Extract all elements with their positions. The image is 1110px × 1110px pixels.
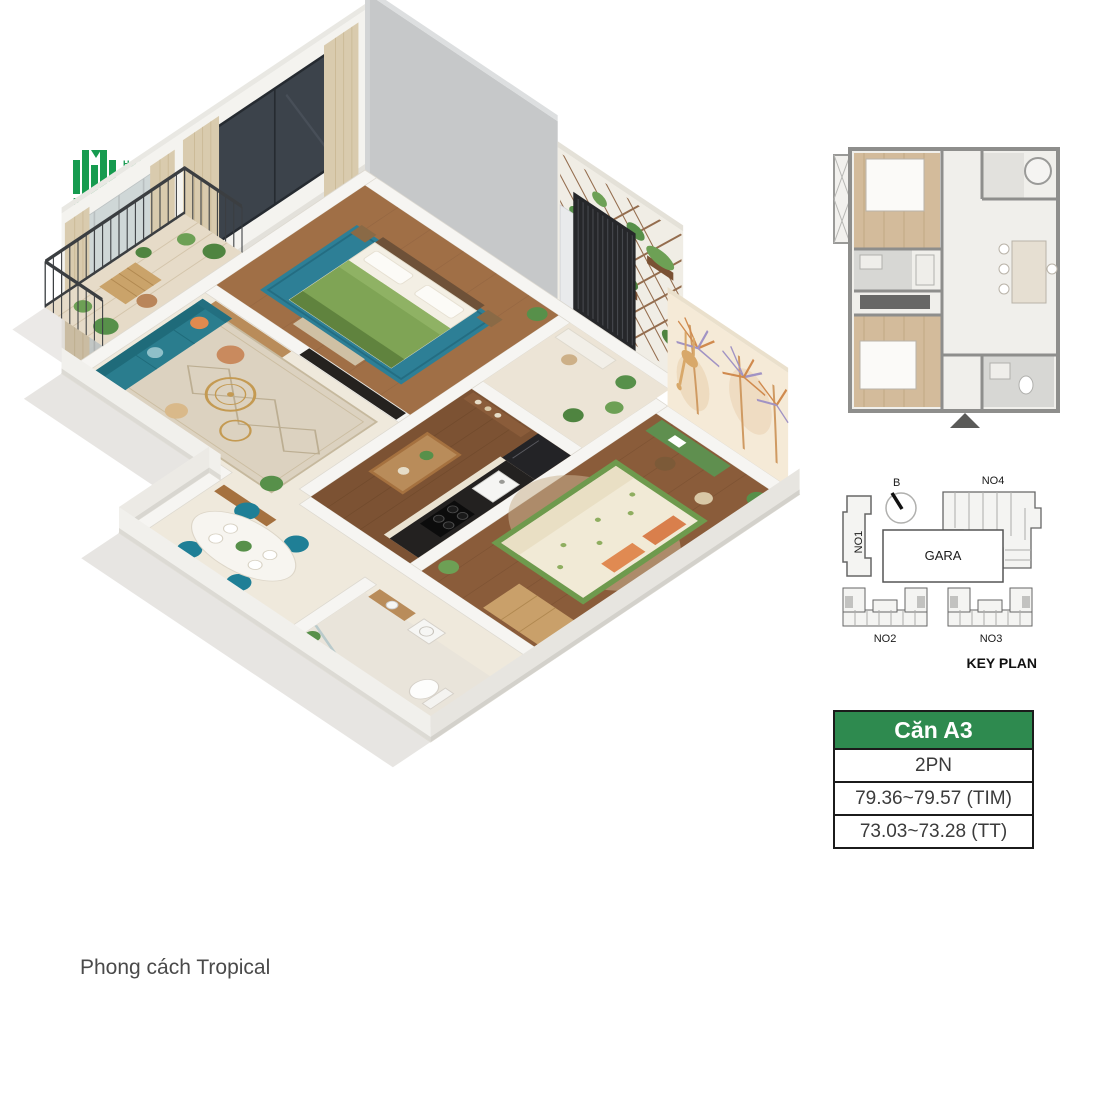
key-plan: NO1 B NO4 GARA [835,470,1060,680]
unit-area-tim: 79.36~79.57 (TIM) [835,783,1032,816]
keyplan-label-gara: GARA [925,548,962,563]
unit-info-table: Căn A3 2PN 79.36~79.57 (TIM) 73.03~73.28… [833,710,1034,849]
keyplan-gara: GARA [883,530,1003,582]
keyplan-label-no3: NO3 [980,633,1003,645]
compass-label: B [893,477,900,489]
plan2d-kitchen-counter [860,295,930,309]
unit-floorplan-2d [830,145,1065,435]
unit-bedrooms: 2PN [835,750,1032,783]
keyplan-title: KEY PLAN [966,655,1037,671]
plan2d-bed1 [866,159,924,211]
plan2d-dining-table [1012,241,1046,303]
keyplan-label-no2: NO2 [874,633,897,645]
plan2d-round-fixture [1025,158,1051,184]
plan2d-bed2 [860,341,916,389]
keyplan-label-no4: NO4 [982,475,1005,487]
unit-area-tt: 73.03~73.28 (TT) [835,816,1032,847]
keyplan-building-no3: NO3 [948,588,1032,645]
style-caption: Phong cách Tropical [80,956,270,980]
compass: B [886,477,916,523]
entrance-arrow-icon [950,413,980,428]
keyplan-label-no1: NO1 [853,531,865,554]
keyplan-building-no2: NO2 [843,588,927,645]
keyplan-building-no1: NO1 [843,496,871,576]
ac-unit [560,205,573,310]
unit-name: Căn A3 [835,712,1032,750]
